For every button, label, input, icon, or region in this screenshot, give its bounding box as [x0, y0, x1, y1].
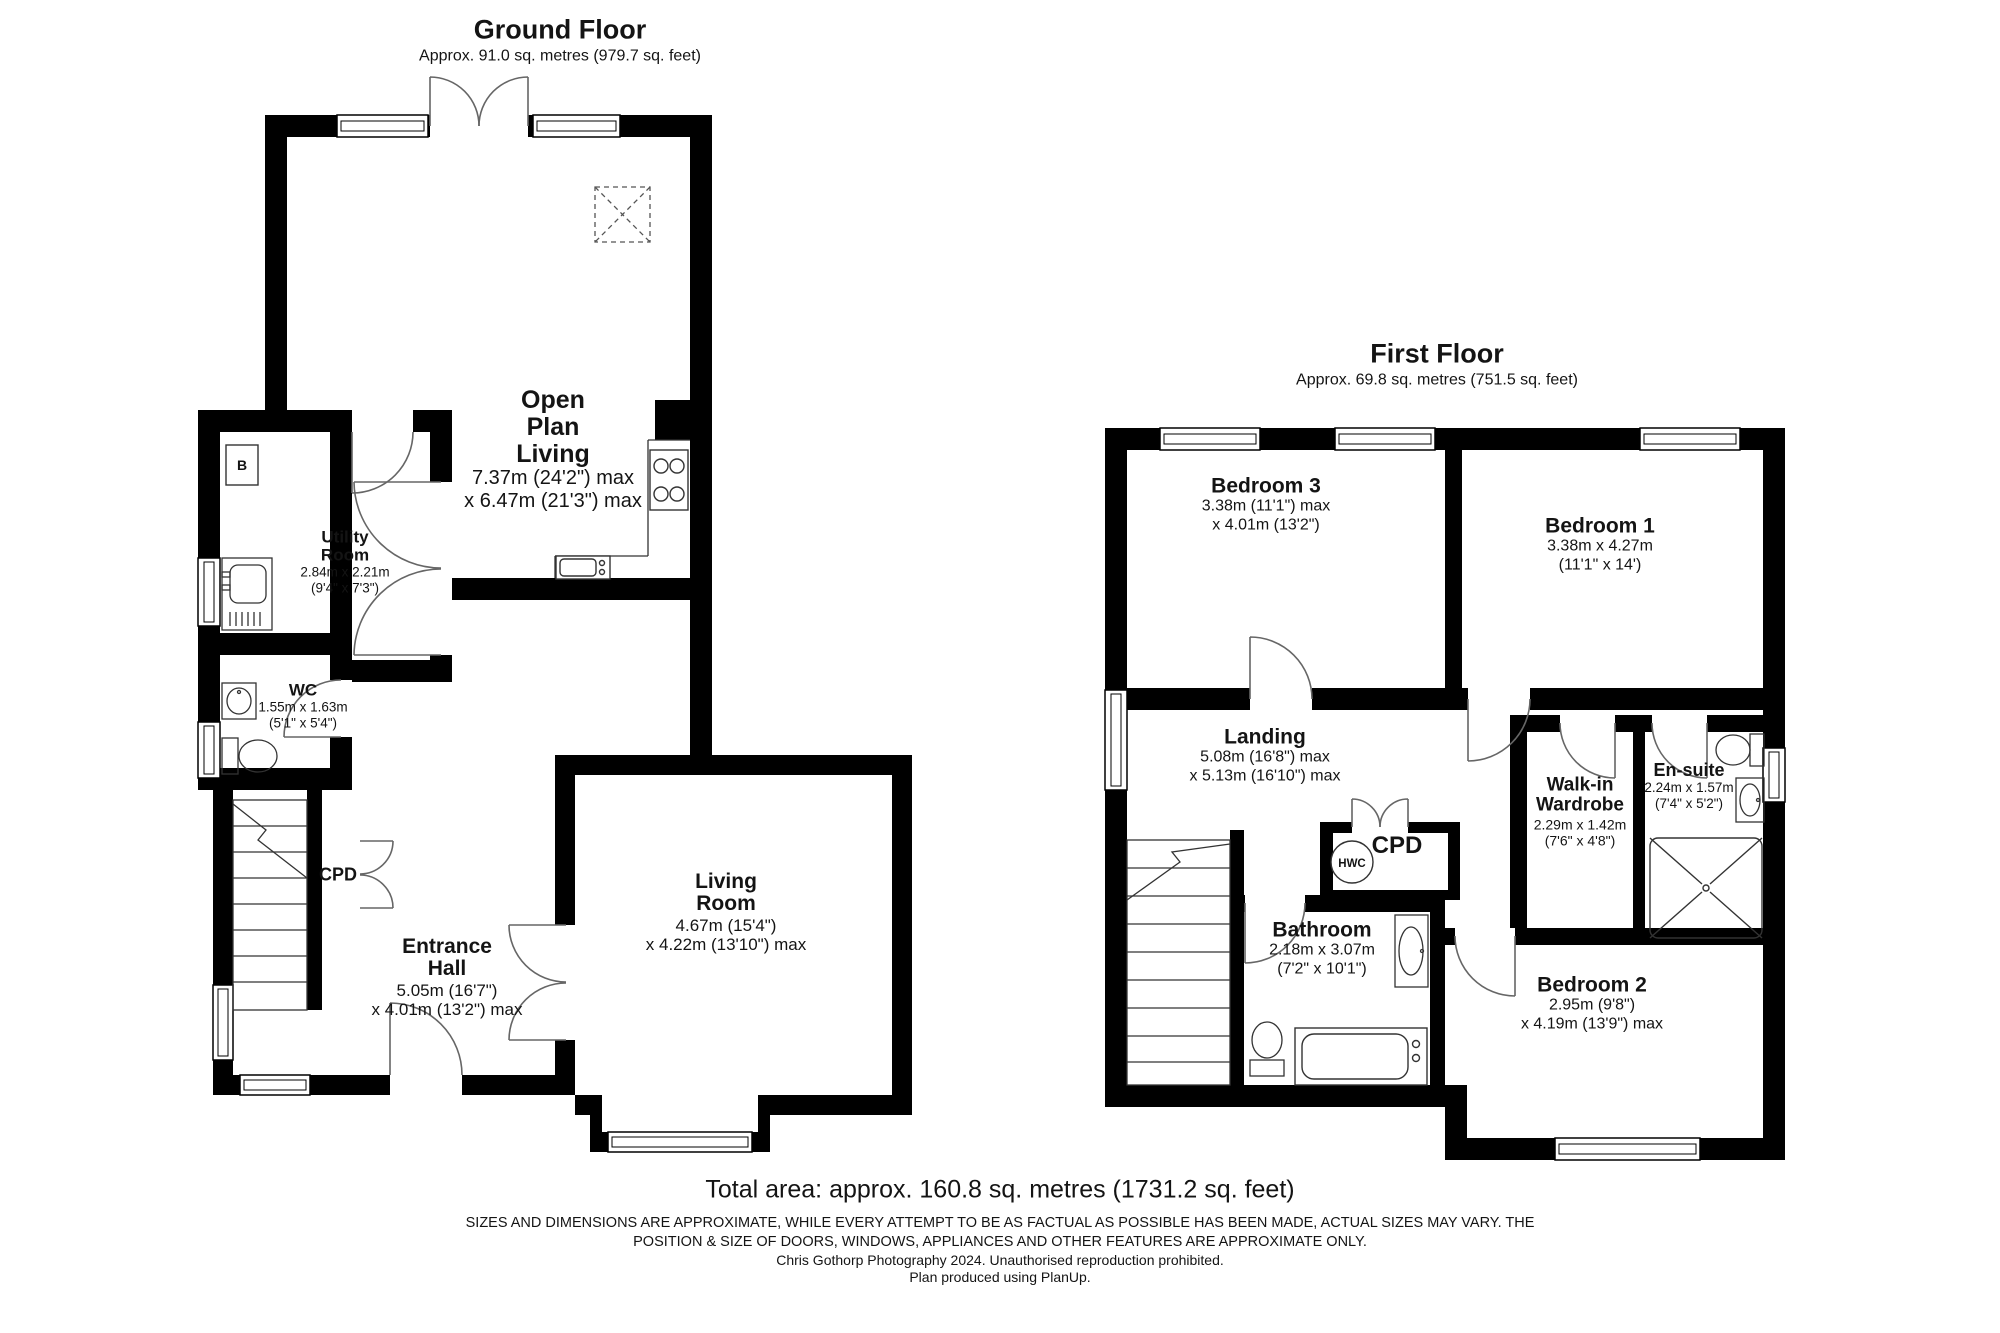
ground-floor-plan — [198, 77, 912, 1152]
room-dimensions: (7'2" x 10'1") — [1269, 960, 1375, 978]
disclaimer-text: SIZES AND DIMENSIONS ARE APPROXIMATE, WH… — [466, 1215, 1535, 1231]
window-icon — [240, 1075, 310, 1095]
room-name: Wardrobe — [1534, 796, 1627, 816]
floor-area-subtitle: Approx. 69.8 sq. metres (751.5 sq. feet) — [1296, 368, 1578, 392]
room-dimensions: x 4.01m (13'2") — [1202, 516, 1330, 534]
window-icon — [533, 115, 620, 137]
room-label-bedroom-2: Bedroom 2 2.95m (9'8") x 4.19m (13'9") m… — [1521, 974, 1663, 1033]
credit-text: Plan produced using PlanUp. — [909, 1269, 1090, 1285]
bath-icon — [1295, 1028, 1427, 1085]
total-area-text: Total area: approx. 160.8 sq. metres (17… — [705, 1176, 1294, 1205]
floor-area-subtitle: Approx. 91.0 sq. metres (979.7 sq. feet) — [419, 44, 701, 68]
room-dimensions: (5'1" x 5'4") — [258, 715, 347, 731]
room-name: Plan — [464, 414, 642, 441]
skylight-icon — [595, 187, 650, 242]
room-name: Living — [464, 440, 642, 467]
floor-title: First Floor — [1296, 340, 1578, 369]
room-dimensions: 1.55m x 1.63m — [258, 700, 347, 716]
bathroom-toilet-icon — [1250, 1022, 1284, 1076]
floor-title: Ground Floor — [419, 16, 701, 45]
ensuite-basin-icon — [1736, 778, 1764, 822]
room-name: Open — [464, 387, 642, 414]
room-dimensions: (11'1" x 14') — [1545, 556, 1655, 574]
room-name: En-suite — [1644, 761, 1733, 780]
hwc-label: HWC — [1338, 858, 1365, 870]
room-label-utility: Utility Room 2.84m x 2.21m (9'4" x 7'3") — [300, 528, 389, 595]
cupboard-label-first: CPD — [1372, 832, 1423, 860]
room-name: Room — [646, 893, 806, 915]
room-label-living-room: Living Room 4.67m (15'4") x 4.22m (13'10… — [646, 871, 806, 955]
room-dimensions: 5.08m (16'8") max — [1189, 749, 1340, 767]
room-name: Utility — [300, 528, 389, 546]
disclaimer-line-1: SIZES AND DIMENSIONS ARE APPROXIMATE, WH… — [466, 1215, 1535, 1231]
room-name: Hall — [372, 958, 523, 980]
credit-text: Chris Gothorp Photography 2024. Unauthor… — [776, 1252, 1224, 1268]
total-area-value: Total area: approx. 160.8 sq. metres (17… — [705, 1176, 1294, 1204]
ground-floor-title: Ground Floor Approx. 91.0 sq. metres (97… — [419, 16, 701, 69]
room-label-entrance-hall: Entrance Hall 5.05m (16'7") x 4.01m (13'… — [372, 936, 523, 1020]
window-icon — [1555, 1138, 1700, 1160]
room-name: Landing — [1189, 726, 1340, 748]
window-icon — [1640, 428, 1740, 450]
room-dimensions: 2.95m (9'8") — [1521, 997, 1663, 1015]
window-icon — [337, 115, 428, 137]
window-icon — [1160, 428, 1260, 450]
room-dimensions: 4.67m (15'4") — [646, 916, 806, 936]
hob-icon — [650, 450, 688, 510]
cupboard-label-ground: CPD — [319, 865, 357, 886]
double-door-icon — [360, 841, 393, 874]
room-label-en-suite: En-suite 2.24m x 1.57m (7'4" x 5'2") — [1644, 761, 1733, 811]
room-name: Room — [300, 546, 389, 564]
room-label-wc: WC 1.55m x 1.63m (5'1" x 5'4") — [258, 681, 347, 730]
room-name: Bathroom — [1269, 919, 1375, 941]
room-dimensions: (7'4" x 5'2") — [1644, 796, 1733, 812]
room-name: Bedroom 1 — [1545, 515, 1655, 537]
room-name: Entrance — [372, 936, 523, 958]
room-label-walk-in-wardrobe: Walk-in Wardrobe 2.29m x 1.42m (7'6" x 4… — [1534, 776, 1627, 849]
credit-line-1: Chris Gothorp Photography 2024. Unauthor… — [776, 1252, 1224, 1268]
window-icon — [213, 985, 233, 1060]
room-name: CPD — [319, 865, 357, 885]
room-label-bedroom-3: Bedroom 3 3.38m (11'1") max x 4.01m (13'… — [1202, 475, 1330, 534]
first-floor-title: First Floor Approx. 69.8 sq. metres (751… — [1296, 340, 1578, 393]
room-dimensions: 7.37m (24'2") max — [464, 467, 642, 490]
shower-icon — [1650, 838, 1762, 938]
room-dimensions: 2.24m x 1.57m — [1644, 780, 1733, 796]
stairs-icon — [233, 800, 307, 1010]
room-dimensions: x 5.13m (16'10") max — [1189, 767, 1340, 785]
utility-sink-icon — [222, 558, 272, 630]
room-name: Bedroom 3 — [1202, 475, 1330, 497]
credit-line-2: Plan produced using PlanUp. — [909, 1269, 1090, 1285]
window-icon — [198, 722, 220, 778]
window-icon — [608, 1132, 752, 1152]
disclaimer-line-2: POSITION & SIZE OF DOORS, WINDOWS, APPLI… — [633, 1234, 1367, 1250]
window-icon — [1763, 748, 1785, 802]
window-icon — [198, 558, 220, 626]
room-dimensions: 3.38m x 4.27m — [1545, 538, 1655, 556]
room-label-bedroom-1: Bedroom 1 3.38m x 4.27m (11'1" x 14') — [1545, 515, 1655, 574]
room-name: Living — [646, 871, 806, 893]
boiler-label: B — [237, 457, 247, 473]
room-dimensions: 2.18m x 3.07m — [1269, 942, 1375, 960]
bathroom-basin-icon — [1395, 915, 1428, 987]
room-dimensions: 5.05m (16'7") — [372, 981, 523, 1001]
chimney-breast — [655, 400, 712, 440]
window-icon — [1105, 690, 1127, 790]
room-name: CPD — [1372, 832, 1423, 859]
room-dimensions: 2.84m x 2.21m — [300, 565, 389, 581]
sink-icon — [556, 556, 610, 579]
room-label-open-plan-living: Open Plan Living 7.37m (24'2") max x 6.4… — [464, 387, 642, 513]
room-dimensions: 3.38m (11'1") max — [1202, 498, 1330, 516]
room-dimensions: x 4.19m (13'9") max — [1521, 1015, 1663, 1033]
window-icon — [1335, 428, 1435, 450]
floorplan-page: B HWC Ground Floor Approx. 91.0 sq. metr… — [0, 0, 2000, 1333]
room-name: Bedroom 2 — [1521, 974, 1663, 996]
room-label-bathroom: Bathroom 2.18m x 3.07m (7'2" x 10'1") — [1269, 919, 1375, 978]
room-name: WC — [258, 681, 347, 699]
room-label-landing: Landing 5.08m (16'8") max x 5.13m (16'10… — [1189, 726, 1340, 785]
room-dimensions: x 4.22m (13'10") max — [646, 935, 806, 955]
disclaimer-text: POSITION & SIZE OF DOORS, WINDOWS, APPLI… — [633, 1234, 1367, 1250]
door-arc-icon — [352, 432, 413, 493]
room-name: Walk-in — [1534, 776, 1627, 796]
stairs-icon — [1127, 840, 1230, 1085]
room-dimensions: 2.29m x 1.42m — [1534, 816, 1627, 832]
wc-basin-icon — [222, 683, 256, 719]
room-dimensions: (9'4" x 7'3") — [300, 580, 389, 596]
room-dimensions: (7'6" x 4'8") — [1534, 832, 1627, 848]
double-door-icon — [360, 875, 393, 908]
floorplan-canvas: B HWC — [0, 0, 2000, 1333]
room-dimensions: x 6.47m (21'3") max — [464, 490, 642, 513]
room-dimensions: x 4.01m (13'2") max — [372, 1000, 523, 1020]
